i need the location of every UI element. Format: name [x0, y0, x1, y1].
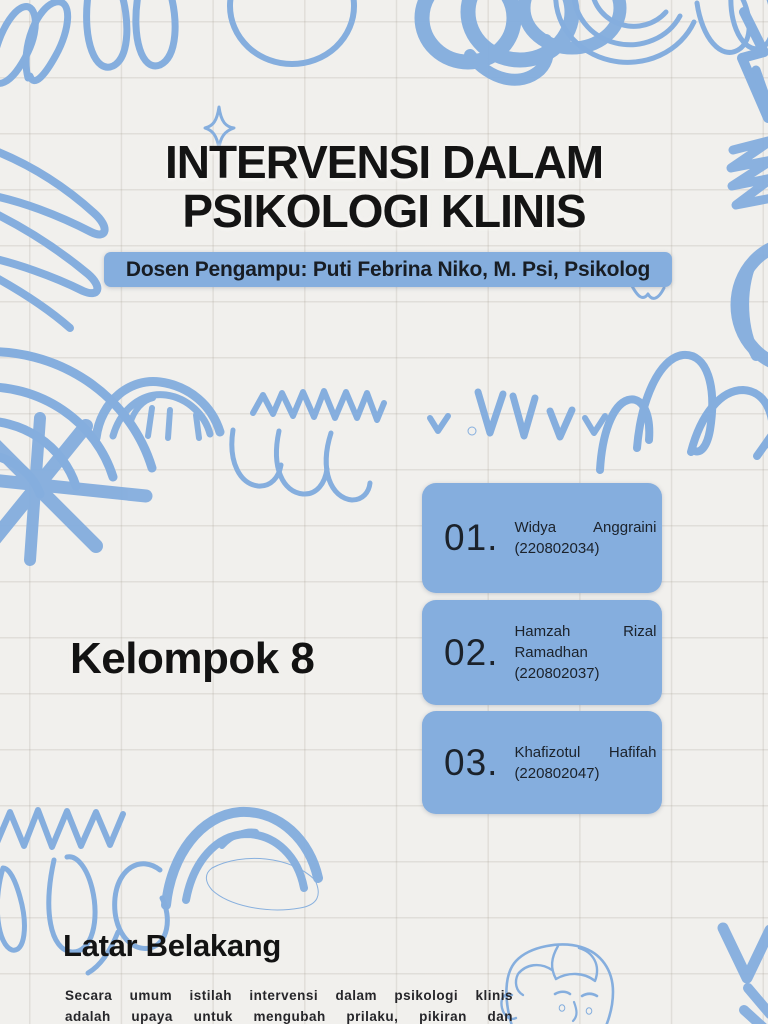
member-card-1: 01. Widya Anggraini (220802034): [422, 483, 662, 593]
doodle-zigzag-bottom: [0, 810, 123, 847]
member-id: (220802037): [514, 665, 599, 682]
doodle-swooshes: [232, 430, 370, 500]
member-card-3: 03. Khafizotul Hafifah (220802047): [422, 711, 662, 814]
doodle-double-arch: [600, 355, 768, 470]
doodle-loops-top-left: [0, 0, 175, 95]
member-card-2: 02. Hamzah Rizal Ramadhan (220802037): [422, 600, 662, 705]
title-line-1: INTERVENSI DALAM: [165, 136, 603, 188]
lecturer-banner: Dosen Pengampu: Puti Febrina Niko, M. Ps…: [104, 252, 672, 287]
member-name: Hamzah Rizal Ramadhan: [514, 623, 656, 661]
slide-title: INTERVENSI DALAMPSIKOLOGI KLINIS: [0, 138, 768, 236]
slide-page: INTERVENSI DALAMPSIKOLOGI KLINIS Dosen P…: [0, 0, 768, 1024]
title-line-2: PSIKOLOGI KLINIS: [182, 185, 585, 237]
member-number: 03.: [444, 742, 498, 784]
member-list: 01. Widya Anggraini (220802034) 02. Hamz…: [422, 483, 662, 814]
doodle-checkmarks: [430, 392, 605, 437]
paragraph-line-1: Secara umum istilah intervensi dalam psi…: [65, 985, 513, 1006]
member-number: 01.: [444, 517, 498, 559]
member-id: (220802047): [514, 765, 599, 782]
doodle-asterisk: [0, 418, 146, 560]
doodle-filled-arch: [166, 812, 318, 910]
section-heading: Latar Belakang: [63, 928, 281, 964]
doodle-zigzag-mid: [253, 391, 384, 420]
paragraph-line-2: adalah upaya untuk mengubah prilaku, pik…: [65, 1006, 513, 1024]
member-name: Widya Anggraini: [514, 519, 656, 536]
doodle-spiral-blob: [422, 0, 620, 80]
member-info: Khafizotul Hafifah (220802047): [514, 742, 656, 784]
doodle-circle-scribble-right: [737, 243, 768, 367]
doodle-v-bottom-right: [723, 928, 768, 978]
member-info: Hamzah Rizal Ramadhan (220802037): [514, 621, 656, 684]
doodle-corner-scribble: [744, 988, 768, 1024]
member-info: Widya Anggraini (220802034): [514, 517, 656, 559]
doodle-circle-top: [230, 0, 354, 64]
member-number: 02.: [444, 632, 498, 674]
face-sketch: [501, 945, 613, 1024]
member-id: (220802034): [514, 540, 599, 557]
member-name: Khafizotul Hafifah: [514, 744, 656, 761]
doodle-lightning-right: [742, 12, 768, 118]
group-title: Kelompok 8: [70, 634, 314, 684]
section-paragraph: Secara umum istilah intervensi dalam psi…: [65, 985, 513, 1024]
doodle-bird-mark: [632, 286, 664, 298]
lecturer-banner-text: Dosen Pengampu: Puti Febrina Niko, M. Ps…: [126, 258, 650, 282]
